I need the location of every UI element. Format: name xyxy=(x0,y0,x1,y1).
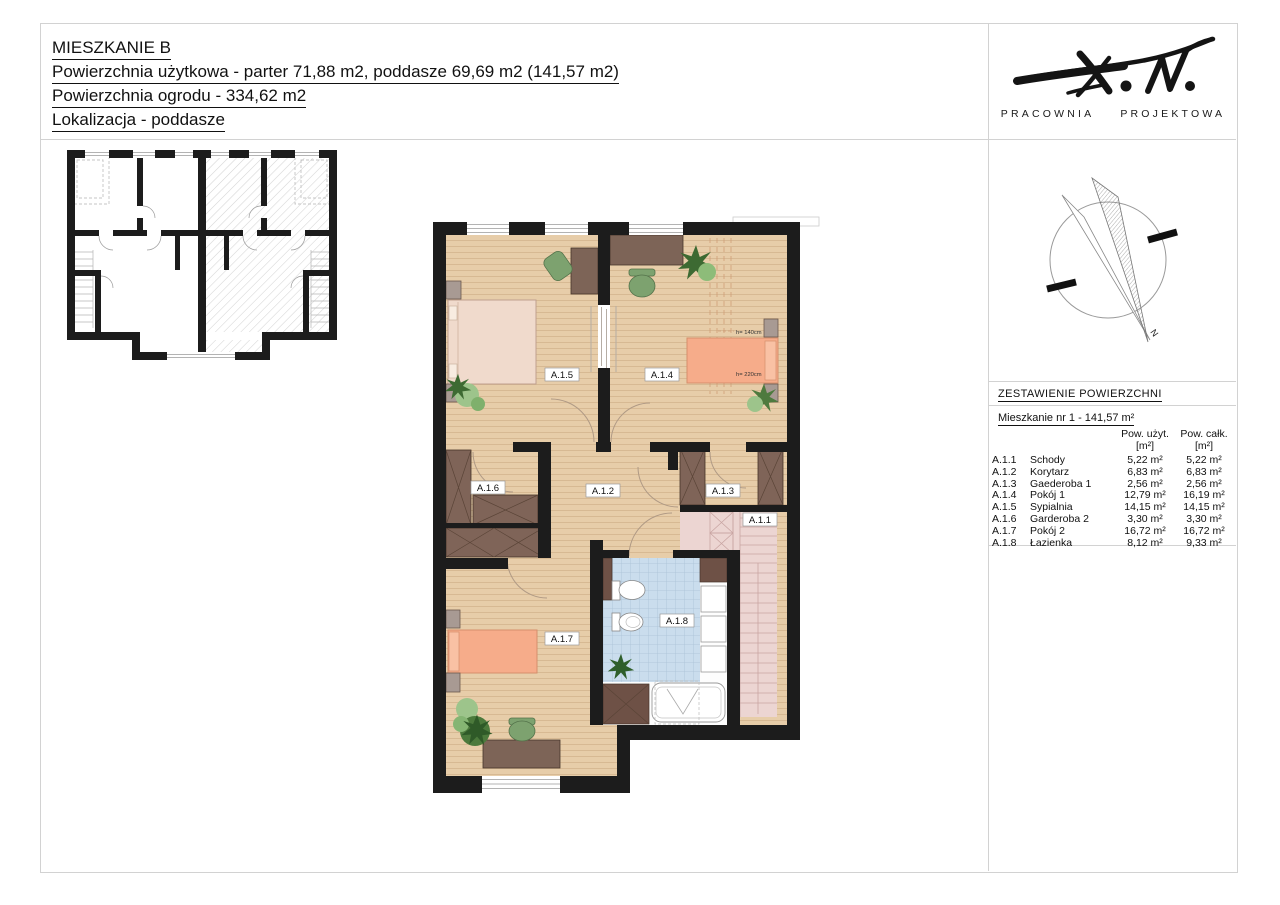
key-plan xyxy=(57,142,347,364)
washing-machine xyxy=(701,616,726,642)
bath-cabinet xyxy=(700,558,727,582)
svg-text:A.1.8: A.1.8 xyxy=(666,616,688,627)
logo-dot xyxy=(1121,81,1132,92)
studio-name: PRACOWNIA PROJEKTOWA xyxy=(990,108,1236,120)
chair xyxy=(509,721,535,741)
toilet xyxy=(619,581,645,600)
header-divider-line xyxy=(40,139,1236,140)
logo-dot-2 xyxy=(1185,81,1195,91)
area-table: Pow. użyt. [m²] Pow. całk. [m²] A.1.1Sch… xyxy=(992,428,1232,549)
summary-header: ZESTAWIENIE POWIERZCHNI xyxy=(998,388,1162,400)
table-row: A.1.6Garderoba 23,30 m²3,30 m² xyxy=(992,514,1232,526)
pillow xyxy=(449,632,459,671)
svg-text:A.1.1: A.1.1 xyxy=(749,515,771,526)
studio-word-1: PRACOWNIA xyxy=(1001,108,1095,120)
summary-subtitle: Mieszkanie nr 1 - 141,57 m² xyxy=(998,412,1134,424)
nightstand xyxy=(446,610,460,628)
svg-text:A.1.4: A.1.4 xyxy=(651,370,673,381)
room-label-a11: A.1.1 xyxy=(743,513,777,526)
floor-plan: h= 140cm h= 220cm A.1.5 A.1.4 A.1.6 A.1.… xyxy=(433,214,823,795)
svg-text:A.1.3: A.1.3 xyxy=(712,486,734,497)
compass-tick-sw xyxy=(1047,282,1076,289)
studio-logo-icon xyxy=(1008,34,1220,104)
north-compass: N xyxy=(1038,160,1188,352)
nightstand xyxy=(446,281,461,299)
summary-header-line xyxy=(988,405,1236,406)
svg-text:A.1.7: A.1.7 xyxy=(551,634,573,645)
single-bed xyxy=(687,338,778,383)
area-table-header: Pow. użyt. [m²] Pow. całk. [m²] xyxy=(992,428,1232,452)
table-row: A.1.8Łazienka8,12 m²9,33 m² xyxy=(992,538,1232,550)
pillow xyxy=(449,306,457,320)
table-row: A.1.2Korytarz6,83 m²6,83 m² xyxy=(992,467,1232,479)
usable-area-line: Powierzchnia użytkowa - parter 71,88 m2,… xyxy=(52,60,619,84)
double-bed xyxy=(448,300,536,384)
room-label-a14: A.1.4 xyxy=(645,368,679,381)
height-annotation-140: h= 140cm xyxy=(736,330,762,336)
nightstand xyxy=(764,319,778,337)
desk xyxy=(571,248,598,294)
cabinet xyxy=(701,646,726,672)
summary-top-line xyxy=(988,381,1236,382)
room-label-a16: A.1.6 xyxy=(471,481,505,494)
pillow xyxy=(765,341,776,380)
pillow xyxy=(449,364,457,378)
plant xyxy=(471,397,485,411)
north-label: N xyxy=(1148,327,1160,338)
single-bed xyxy=(448,630,537,673)
bathtub xyxy=(652,683,725,722)
col-header-calk: Pow. całk. [m²] xyxy=(1176,428,1232,452)
compass-tick-ne xyxy=(1148,232,1177,240)
office-chair xyxy=(629,275,655,297)
svg-text:A.1.5: A.1.5 xyxy=(551,370,573,381)
room-label-a12: A.1.2 xyxy=(586,484,620,497)
dashed-inner-left xyxy=(77,160,103,198)
table-row: A.1.7Pokój 216,72 m²16,72 m² xyxy=(992,526,1232,538)
room-label-a13: A.1.3 xyxy=(706,484,740,497)
svg-text:A.1.2: A.1.2 xyxy=(592,486,614,497)
garden-area-line: Powierzchnia ogrodu - 334,62 m2 xyxy=(52,84,306,108)
nightstand xyxy=(446,673,460,692)
svg-text:A.1.6: A.1.6 xyxy=(477,483,499,494)
plant xyxy=(698,263,716,281)
highlighted-unit-porch xyxy=(206,340,262,352)
desk xyxy=(483,740,560,768)
bath-cabinet xyxy=(603,558,612,600)
bidet xyxy=(619,613,643,631)
desk xyxy=(610,235,683,265)
plant xyxy=(747,396,763,412)
studio-word-2: PROJEKTOWA xyxy=(1120,108,1225,120)
room-label-a17: A.1.7 xyxy=(545,632,579,645)
room-label-a15: A.1.5 xyxy=(545,368,579,381)
panel-divider-line xyxy=(988,23,989,871)
sheet-title: MIESZKANIE B xyxy=(52,36,171,60)
washing-machine xyxy=(701,586,726,612)
location-line: Lokalizacja - poddasze xyxy=(52,108,225,132)
height-annotation-220: h= 220cm xyxy=(736,372,762,378)
title-block: MIESZKANIE B Powierzchnia użytkowa - par… xyxy=(52,36,619,132)
room-label-a18: A.1.8 xyxy=(660,614,694,627)
col-header-uzyt: Pow. użyt. [m²] xyxy=(1114,428,1176,452)
